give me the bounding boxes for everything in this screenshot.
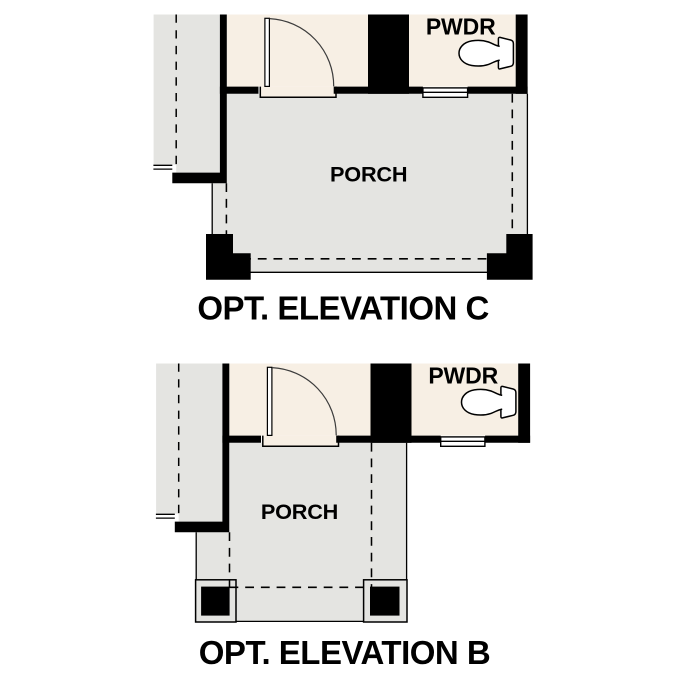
- svg-text:PWDR: PWDR: [428, 363, 498, 389]
- svg-text:PORCH: PORCH: [261, 499, 338, 524]
- svg-text:PWDR: PWDR: [426, 14, 496, 40]
- svg-text:PORCH: PORCH: [330, 161, 407, 186]
- svg-text:OPT. ELEVATION C: OPT. ELEVATION C: [197, 290, 488, 327]
- svg-text:OPT. ELEVATION B: OPT. ELEVATION B: [199, 634, 490, 671]
